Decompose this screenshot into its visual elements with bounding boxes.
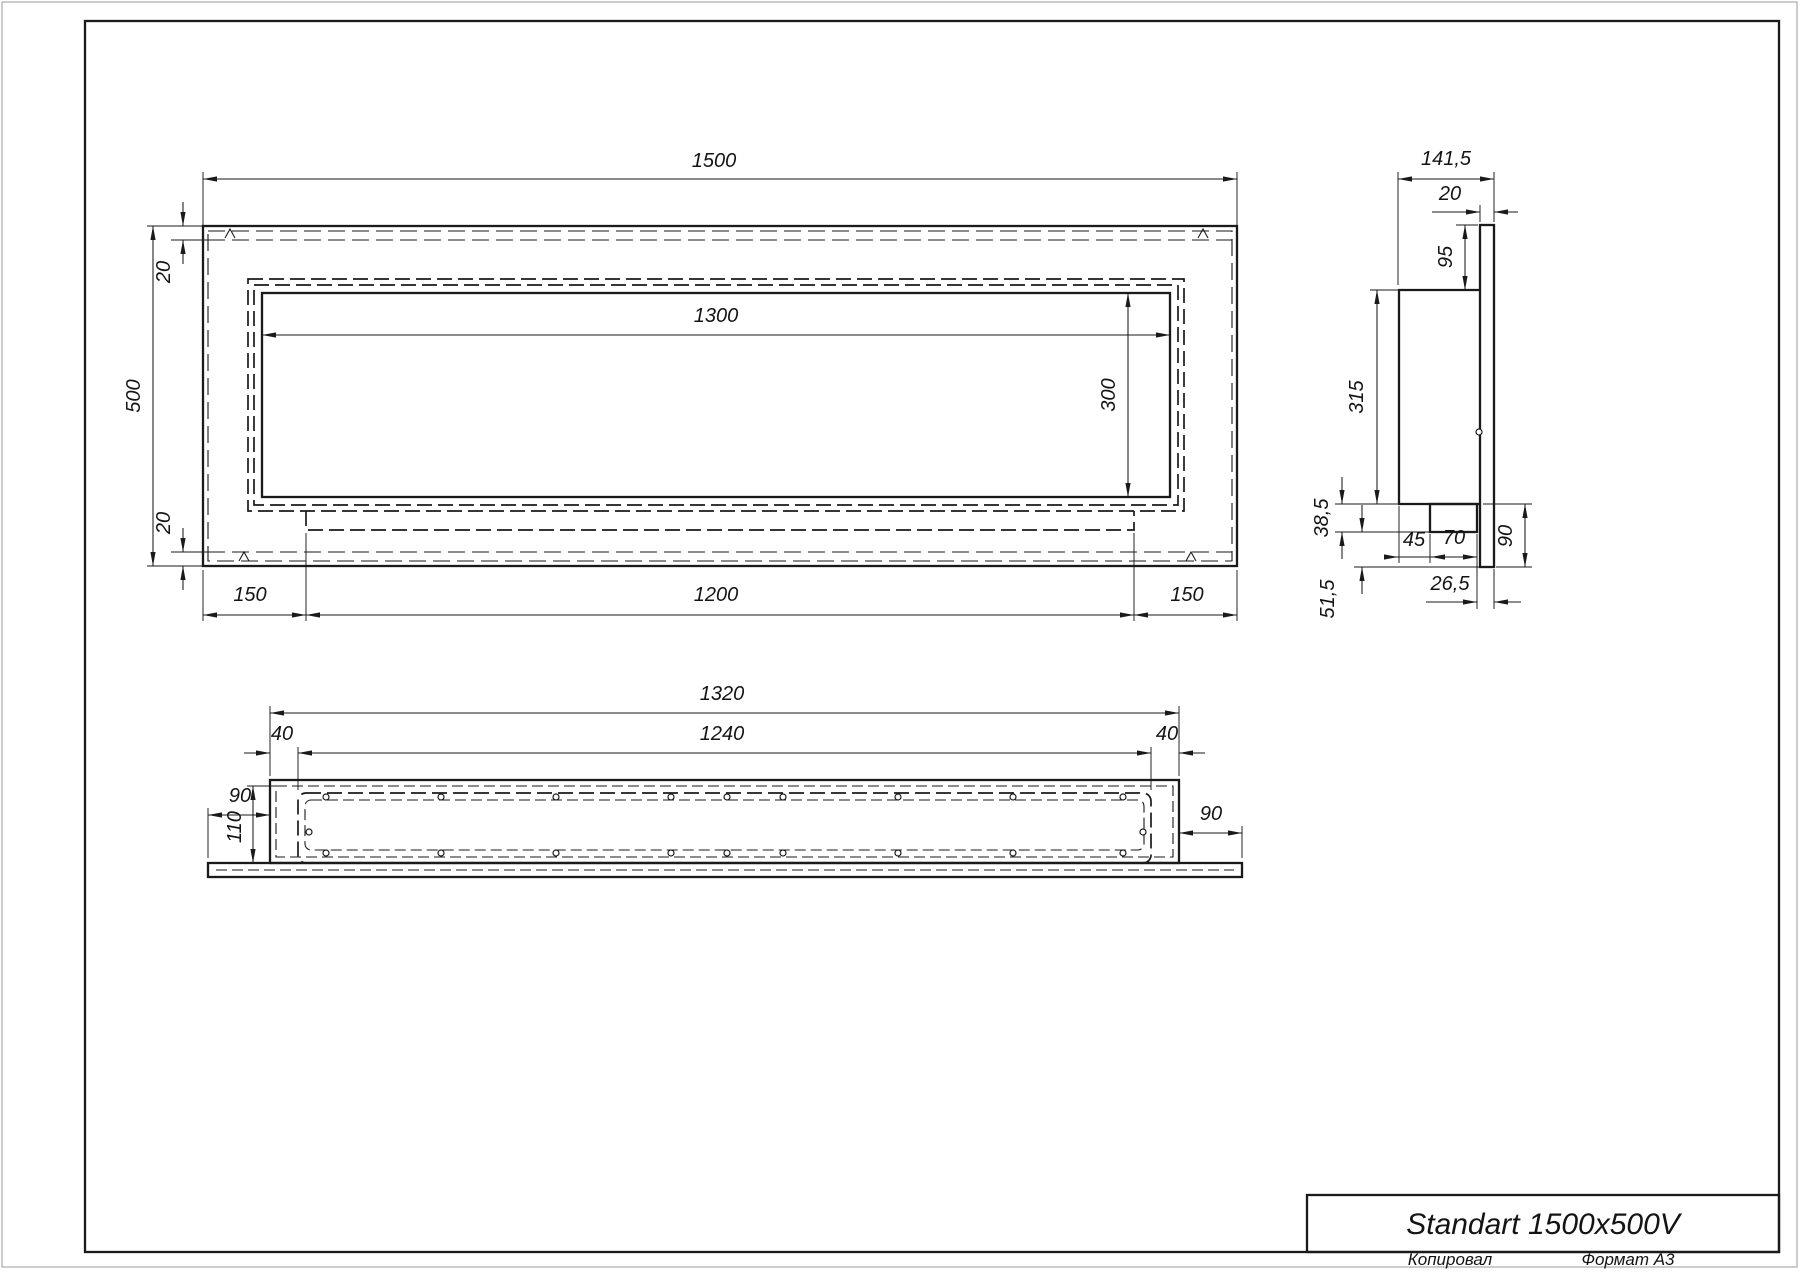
dim-side-tray-drop: 38,5 — [1311, 498, 1333, 538]
dim-side-plate-thickness: 20 — [1438, 183, 1461, 205]
front-view-dimensions: 1500 500 20 20 1300 300 — [123, 150, 1237, 621]
front-view-geometry — [203, 226, 1237, 566]
dim-side-body-height: 315 — [1346, 379, 1368, 413]
dim-front-tray-width: 1200 — [694, 584, 739, 606]
dim-side-tray-bottom-to-plate: 51,5 — [1317, 579, 1339, 619]
dim-side-plate-extension: 90 — [1495, 525, 1517, 547]
dim-side-tray-offset-back: 45 — [1403, 529, 1426, 551]
dim-front-offset-right: 150 — [1170, 584, 1203, 606]
dim-side-tray-to-front: 26,5 — [1430, 573, 1471, 595]
dim-front-overall-height: 500 — [123, 379, 145, 412]
page-frame — [2, 2, 1797, 1267]
drawing-sheet: 1500 500 20 20 1300 300 — [0, 0, 1800, 1273]
dim-side-tray-depth: 70 — [1443, 527, 1465, 549]
side-hole — [1476, 429, 1482, 435]
title-block: Standart 1500x500V Копировал Формат А3 — [1307, 1195, 1779, 1269]
dim-bottom-flange-right: 90 — [1200, 803, 1222, 825]
dim-front-flange-bottom: 20 — [153, 512, 175, 535]
dim-front-opening-height: 300 — [1098, 378, 1120, 411]
edge-mark — [239, 552, 249, 561]
dim-bottom-cavity-width: 1240 — [700, 723, 745, 745]
dim-front-opening-width: 1300 — [694, 305, 739, 327]
dim-bottom-body-width: 1320 — [700, 683, 745, 705]
dim-bottom-cavity-depth: 110 — [224, 811, 246, 843]
side-view-dimensions: 141,5 20 95 315 38,5 51,5 — [1311, 148, 1532, 618]
dim-front-offset-left: 150 — [233, 584, 266, 606]
drawing-title: Standart 1500x500V — [1406, 1208, 1683, 1241]
dim-side-top-inset: 95 — [1435, 245, 1457, 268]
dim-bottom-inset-left: 40 — [271, 723, 293, 745]
bottom-view-dimensions: 1320 1240 40 40 90 90 110 — [208, 683, 1242, 863]
side-view: 141,5 20 95 315 38,5 51,5 — [1311, 148, 1532, 618]
edge-mark — [1186, 552, 1196, 561]
bottom-view-geometry — [208, 780, 1242, 877]
dim-bottom-flange-left: 90 — [229, 785, 251, 807]
dim-side-overall-depth: 141,5 — [1421, 148, 1472, 170]
dim-front-overall-width: 1500 — [692, 150, 737, 172]
front-view: 1500 500 20 20 1300 300 — [123, 150, 1237, 621]
format-label: Формат А3 — [1581, 1250, 1675, 1269]
engineering-drawing: 1500 500 20 20 1300 300 — [0, 0, 1800, 1273]
edge-mark — [1198, 229, 1208, 238]
mounting-holes — [306, 794, 1146, 856]
dim-front-flange-top: 20 — [153, 261, 175, 284]
side-view-geometry — [1398, 225, 1494, 567]
dim-bottom-inset-right: 40 — [1156, 723, 1178, 745]
copied-by-label: Копировал — [1408, 1250, 1493, 1269]
bottom-view: 1320 1240 40 40 90 90 110 — [208, 683, 1242, 877]
edge-mark — [225, 229, 235, 238]
